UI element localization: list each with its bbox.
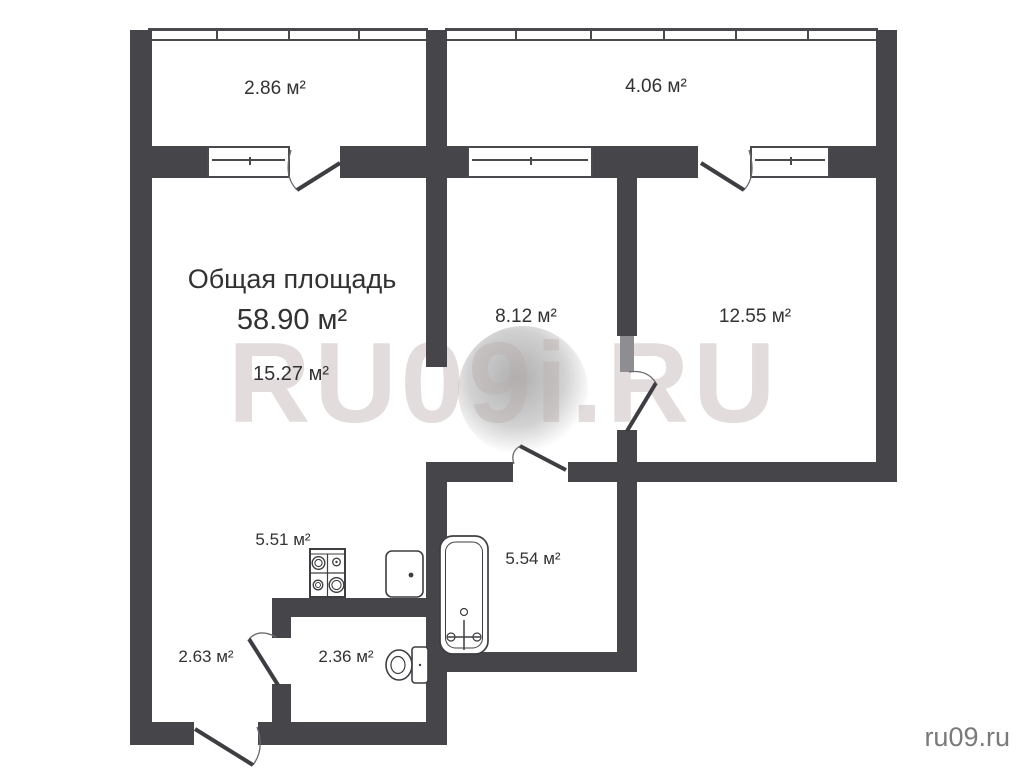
total-area-title: Общая площадь — [172, 264, 412, 295]
door-swing — [195, 727, 260, 765]
stove-icon — [310, 549, 345, 597]
door-swing — [288, 150, 340, 190]
door-swing — [513, 446, 566, 470]
room-area-label-right: 12.55 м² — [675, 306, 835, 328]
room-area-label-balcony-left: 2.86 м² — [195, 78, 355, 100]
room-area-label-bathroom: 5.54 м² — [453, 549, 613, 569]
site-credit: ru09.ru — [850, 722, 1010, 753]
door-swing — [701, 150, 752, 190]
room-area-label-balcony-right: 4.06 м² — [576, 76, 736, 98]
door-swing — [627, 371, 656, 431]
sink-icon — [386, 551, 423, 597]
room-area-label-hallway: 2.63 м² — [126, 647, 286, 667]
room-area-label-middle: 8.12 м² — [446, 306, 606, 328]
room-area-label-kitchen: 5.51 м² — [203, 530, 363, 550]
room-area-label-wc: 2.36 м² — [266, 647, 426, 667]
total-area-value: 58.90 м² — [172, 304, 412, 337]
floor-plan: RU09i.RU — [0, 0, 1024, 768]
room-area-label-living: 15.27 м² — [211, 363, 371, 386]
